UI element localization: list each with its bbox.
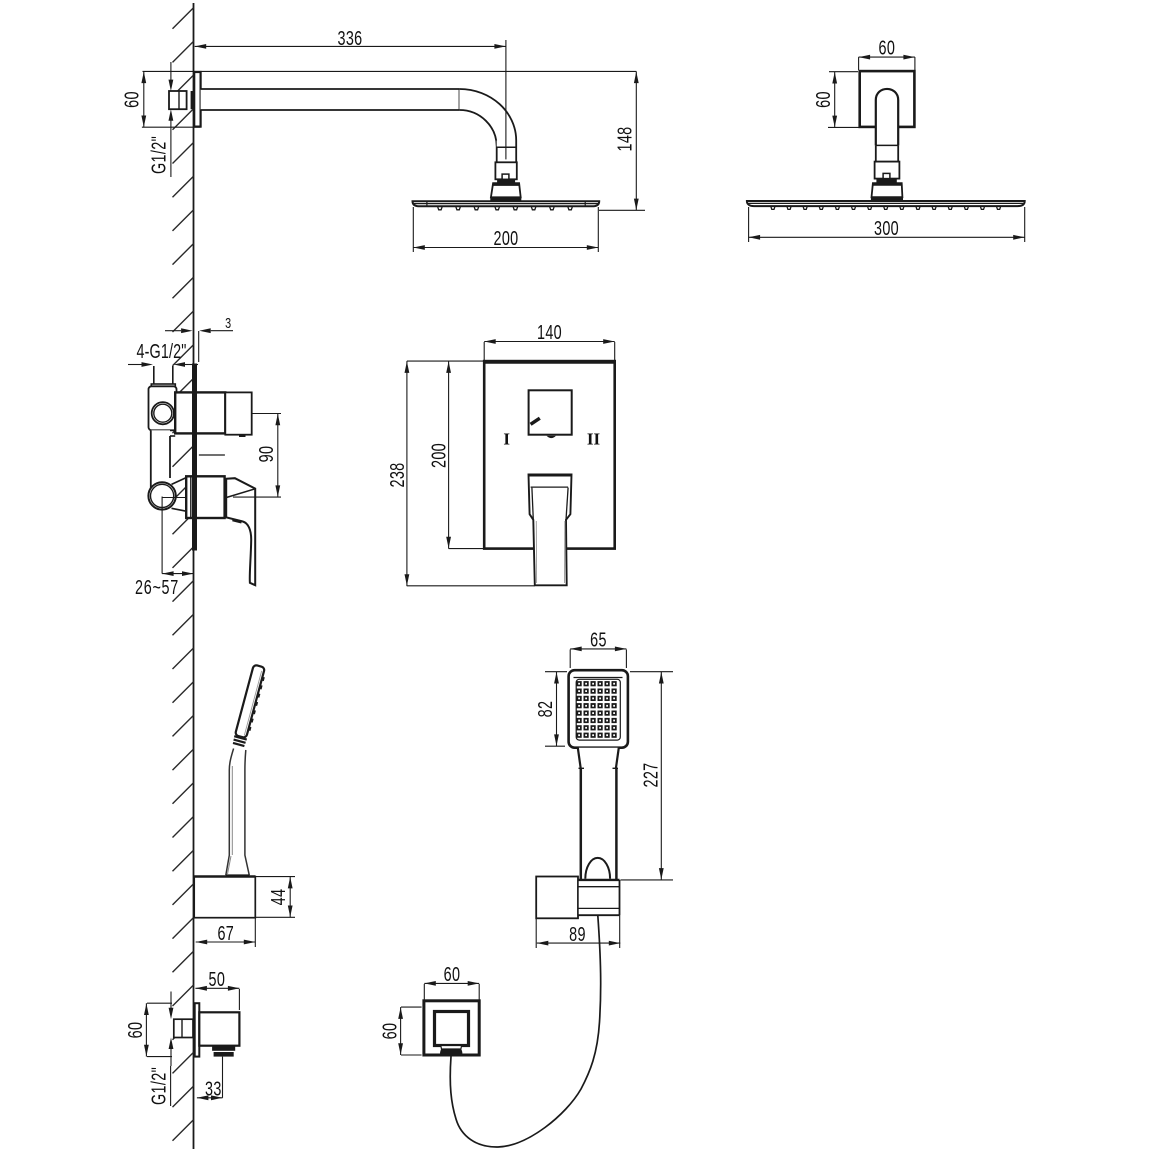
svg-text:89: 89 <box>569 923 586 946</box>
svg-text:82: 82 <box>533 701 556 718</box>
svg-text:I: I <box>503 430 510 449</box>
svg-text:200: 200 <box>493 227 518 250</box>
svg-text:II: II <box>587 430 601 449</box>
svg-text:238: 238 <box>385 462 408 487</box>
svg-text:60: 60 <box>378 1023 401 1040</box>
svg-text:26~57: 26~57 <box>135 576 179 599</box>
svg-text:44: 44 <box>266 889 289 906</box>
svg-text:3: 3 <box>225 314 231 331</box>
svg-text:G1/2": G1/2" <box>147 136 170 174</box>
svg-text:67: 67 <box>217 922 234 945</box>
svg-text:336: 336 <box>337 27 362 50</box>
svg-text:148: 148 <box>613 126 636 151</box>
svg-text:G1/2": G1/2" <box>147 1067 170 1105</box>
svg-text:65: 65 <box>590 628 607 651</box>
svg-text:227: 227 <box>639 762 662 787</box>
svg-text:90: 90 <box>254 446 277 463</box>
svg-text:300: 300 <box>874 217 899 240</box>
svg-text:60: 60 <box>811 91 834 108</box>
svg-text:50: 50 <box>209 968 226 991</box>
svg-text:4-G1/2": 4-G1/2" <box>136 340 186 363</box>
svg-text:140: 140 <box>537 321 562 344</box>
svg-text:33: 33 <box>205 1077 222 1100</box>
svg-text:60: 60 <box>120 91 143 108</box>
svg-text:60: 60 <box>444 963 461 986</box>
svg-text:200: 200 <box>427 443 450 468</box>
svg-text:60: 60 <box>123 1022 146 1039</box>
svg-text:60: 60 <box>879 36 896 59</box>
